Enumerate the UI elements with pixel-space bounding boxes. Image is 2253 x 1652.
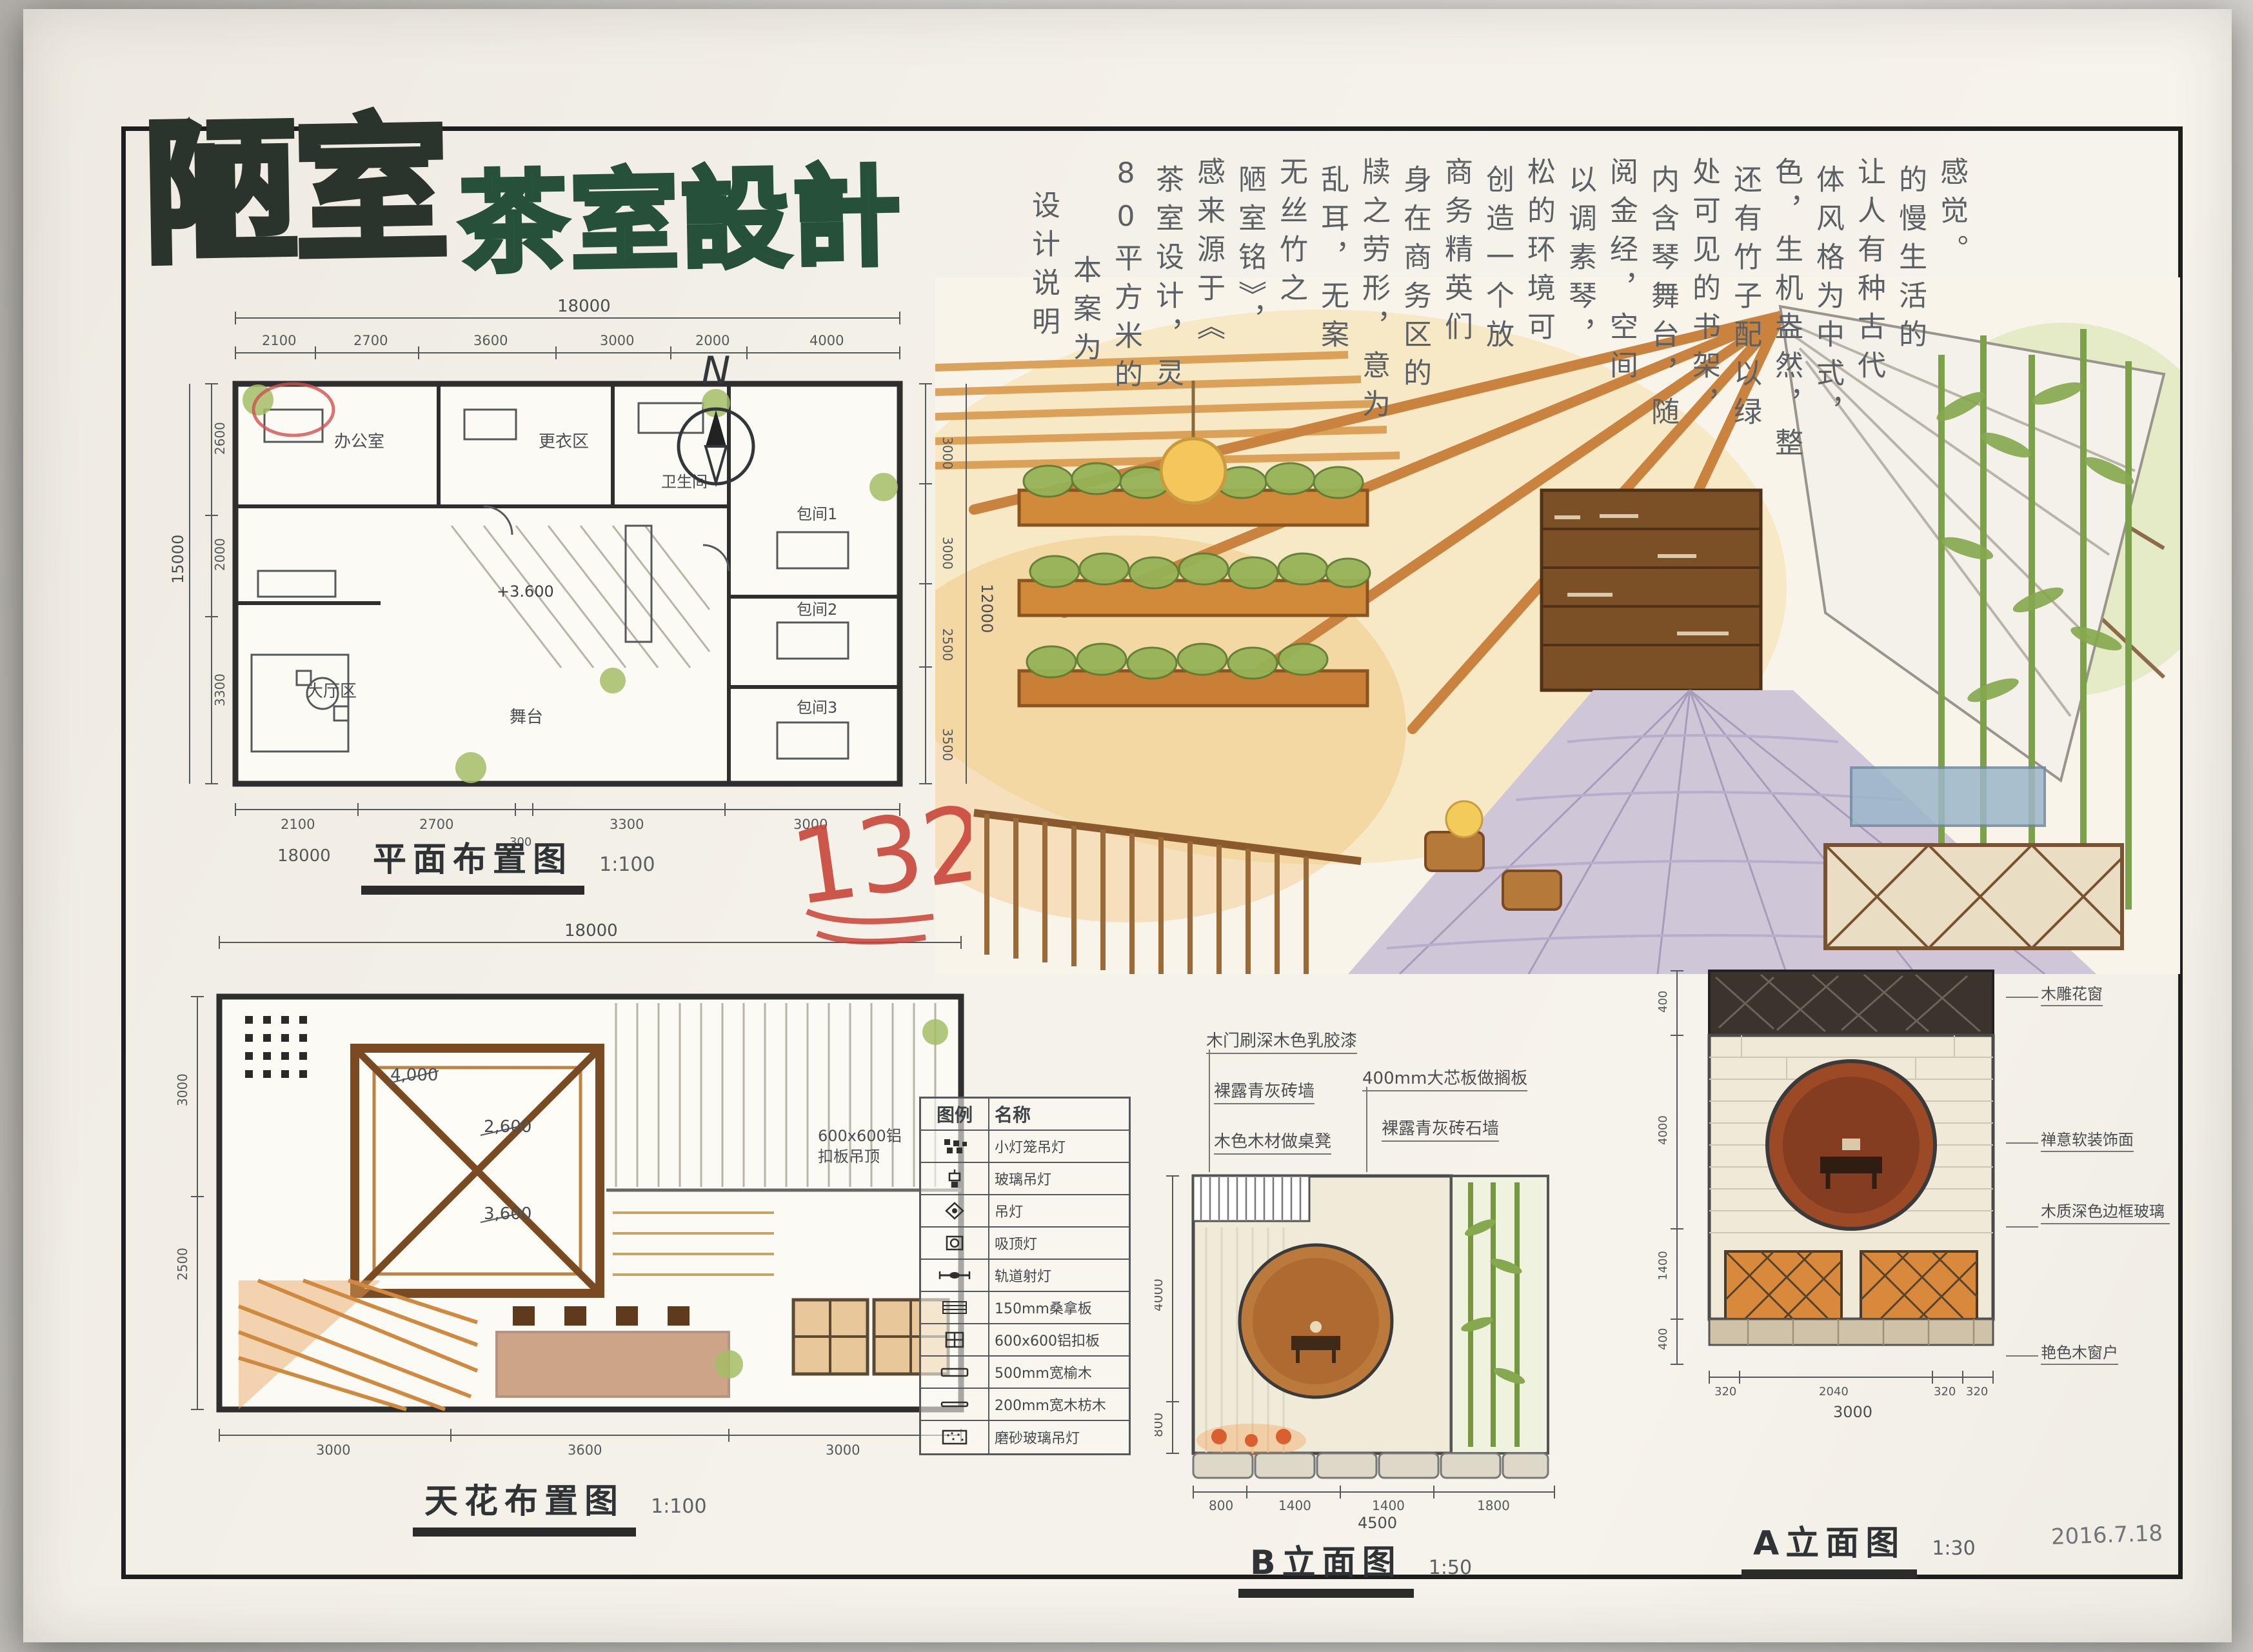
- legend-row: 吸顶灯: [921, 1228, 1129, 1260]
- dim-label: 3500: [940, 728, 955, 761]
- elevation-b-block: 木门刷深木色乳胶漆 裸露青灰砖墙 木色木材做桌凳 400mm大芯板做搁板 裸露青…: [1142, 1022, 1567, 1584]
- ceiling-panel-note: 600x600铝扣板吊顶: [818, 1126, 908, 1168]
- floor-plan-drawing: 18000 2100 2700 3600 3000 2000 4000 1500…: [161, 294, 993, 877]
- legend-row: 600x600铝扣板: [921, 1324, 1129, 1357]
- ceiling-height-callout: 2,600: [484, 1117, 531, 1137]
- room-label: 包间3: [797, 699, 837, 717]
- material-callout: 木质深色边框玻璃: [2041, 1202, 2170, 1224]
- elevation-a-block: 400 4000 1400 400: [1645, 939, 2187, 1577]
- dim-label: 4000: [809, 333, 844, 348]
- dim-label: 2100: [262, 333, 296, 348]
- legend-row: 磨砂玻璃吊灯: [921, 1421, 1129, 1453]
- dim-label: 320: [1934, 1385, 1956, 1398]
- elevation-b-drawing: 4000 800: [1155, 1169, 1561, 1534]
- dim-label: 2100: [281, 817, 315, 832]
- elevation-b-caption: B立面图 1:50: [1238, 1535, 1472, 1598]
- dim-label: 2700: [419, 817, 453, 832]
- dim-label: 1800: [1477, 1498, 1510, 1513]
- description-column: 感觉。: [1937, 157, 1965, 545]
- design-description: 设计说明 本案为 80平方米的 茶室设计，灵 感来源于《 陋室铭》， 无丝竹之 …: [1029, 145, 1965, 545]
- dim-label: 3300: [610, 817, 644, 832]
- dim-label: 400: [1658, 1328, 1670, 1350]
- description-column: 阅金经，空间: [1607, 157, 1635, 545]
- room-label: 办公室: [334, 432, 384, 452]
- description-column: 设计说明: [1029, 190, 1057, 545]
- dim-right-total: 12000: [978, 584, 993, 633]
- board-title-main: 陋室: [142, 112, 446, 272]
- level-mark: +3.600: [497, 582, 554, 601]
- material-callout: 木门刷深木色乳胶漆: [1206, 1028, 1357, 1054]
- grid-panel-icon: [921, 1324, 989, 1355]
- ceiling-height-callout: 4,000: [390, 1066, 438, 1085]
- leader-line: [2006, 1142, 2038, 1144]
- legend-name: 玻璃吊灯: [989, 1168, 1129, 1189]
- description-column: 乱耳，无案: [1318, 164, 1346, 545]
- legend-name: 吸顶灯: [989, 1233, 1129, 1253]
- description-column: 还有竹子配以绿: [1731, 164, 1759, 545]
- hanging-lamp-icon: [921, 1195, 989, 1226]
- description-column: 的慢生活的: [1896, 164, 1924, 545]
- dim-label: 1400: [1372, 1498, 1405, 1513]
- dim-label: 800: [1155, 1413, 1166, 1437]
- elevation-b-title: B立面图: [1238, 1535, 1414, 1598]
- description-column: 色，生机盎然，整: [1772, 157, 1800, 545]
- ceiling-plan-title: 天花布置图: [413, 1474, 636, 1537]
- description-column: 处可见的书架，: [1689, 157, 1718, 545]
- leader-line: [2006, 1226, 2038, 1228]
- legend-row: 小灯笼吊灯: [921, 1131, 1129, 1163]
- dim-label: 2000: [695, 333, 729, 348]
- description-column: 以调素琴，: [1565, 164, 1594, 545]
- description-column: 让人有种古代: [1854, 157, 1883, 545]
- leader-line: [1366, 1087, 1367, 1172]
- legend-name: 500mm宽榆木: [989, 1362, 1129, 1382]
- dim-top-total: 18000: [557, 297, 611, 316]
- legend-name: 轨道射灯: [989, 1265, 1129, 1286]
- ceiling-lamp-icon: [921, 1228, 989, 1259]
- pendant-light-icon: [921, 1163, 989, 1194]
- elevation-a-drawing: 400 4000 1400 400: [1658, 951, 2032, 1442]
- dim-label: 800: [1209, 1498, 1233, 1513]
- date-note: 2016.7.18: [2050, 1520, 2163, 1550]
- ceiling-plan-caption: 天花布置图 1:100: [413, 1474, 707, 1537]
- legend-name: 小灯笼吊灯: [989, 1136, 1129, 1157]
- dim-label: 2600: [212, 422, 228, 455]
- description-column: 身在商务区的: [1400, 164, 1429, 545]
- dim-top-total: 18000: [564, 921, 618, 940]
- dim-label: 3300: [212, 673, 228, 706]
- wide-board-icon: [921, 1357, 989, 1388]
- floor-plan-scale: 1:100: [599, 853, 655, 876]
- leader-line: [2006, 997, 2038, 998]
- dim-left-total: 15000: [169, 535, 187, 584]
- material-callout: 裸露青灰砖墙: [1214, 1078, 1315, 1104]
- dim-label: 2500: [940, 628, 955, 661]
- room-label: 包间2: [797, 601, 837, 619]
- description-column: 80平方米的: [1111, 157, 1140, 545]
- dim-label: 4000: [1155, 1279, 1166, 1311]
- material-callout: 400mm大芯板做搁板: [1362, 1065, 1527, 1091]
- legend-name: 600x600铝扣板: [989, 1329, 1129, 1350]
- room-label: 舞台: [510, 708, 543, 727]
- frosted-panel-icon: [921, 1421, 989, 1453]
- dim-label: 3000: [175, 1073, 190, 1106]
- dim-bottom-total: 3000: [1833, 1403, 1872, 1421]
- legend-header-symbol: 图例: [921, 1099, 989, 1130]
- elevation-a-caption: A立面图 1:30: [1742, 1516, 1976, 1578]
- ceiling-plan-scale: 1:100: [651, 1495, 706, 1518]
- material-callout: 艳色木窗户: [2041, 1340, 2118, 1365]
- dim-label: 2700: [353, 333, 388, 348]
- design-board-photo: { "board": { "title_main": "陋室", "title_…: [0, 0, 2253, 1652]
- description-column: 牍之劳形，意为: [1359, 157, 1387, 545]
- dim-label: 320: [1966, 1385, 1988, 1398]
- leader-line: [2006, 1355, 2038, 1357]
- red-marker-annotation: 132: [784, 797, 971, 960]
- elevation-b-scale: 1:50: [1429, 1557, 1472, 1579]
- description-column: 创造一个放: [1483, 164, 1511, 545]
- description-column: 茶室设计，灵: [1153, 164, 1181, 545]
- description-column: 松的环境可: [1524, 157, 1553, 545]
- legend-row: 200mm宽木枋木: [921, 1389, 1129, 1421]
- material-callout: 木雕花窗: [2041, 981, 2103, 1006]
- legend-row: 吊灯: [921, 1195, 1129, 1228]
- dim-label: 3000: [940, 537, 955, 570]
- description-column: 无丝竹之: [1276, 157, 1305, 545]
- dim-label: 400: [1658, 991, 1670, 1013]
- leader-line: [1209, 1050, 1210, 1172]
- dim-label: 2040: [1819, 1385, 1849, 1398]
- dim-label: 2000: [212, 538, 228, 571]
- ceiling-height-callout: 3,600: [484, 1204, 531, 1224]
- description-column: 感来源于《: [1194, 157, 1222, 545]
- dim-label: 3000: [316, 1442, 350, 1458]
- north-label: N: [671, 348, 761, 393]
- dim-label: 3000: [600, 333, 634, 348]
- description-column: 体风格为中式，: [1813, 164, 1841, 545]
- legend-name: 150mm桑拿板: [989, 1297, 1129, 1318]
- dim-label: 4000: [1658, 1115, 1670, 1145]
- description-column: 陋室铭》，: [1235, 164, 1264, 545]
- legend-name: 磨砂玻璃吊灯: [989, 1427, 1129, 1448]
- legend-name: 200mm宽木枋木: [989, 1394, 1129, 1415]
- ceiling-plan-drawing: 18000: [161, 919, 993, 1487]
- elevation-a-title: A立面图: [1742, 1516, 1917, 1578]
- legend-name: 吊灯: [989, 1200, 1129, 1221]
- legend-row: 500mm宽榆木: [921, 1357, 1129, 1389]
- description-column: 本案为: [1070, 255, 1098, 545]
- floor-plan-bottom-total: 18000: [277, 846, 331, 866]
- material-callout: 木色木材做桌凳: [1214, 1128, 1331, 1155]
- legend-header-name: 名称: [989, 1101, 1129, 1127]
- dim-label: 1400: [1658, 1251, 1670, 1280]
- dim-label: 1400: [1278, 1498, 1311, 1513]
- description-column: 商务精英们: [1442, 157, 1470, 545]
- lantern-cluster-icon: [921, 1131, 989, 1162]
- dim-label: 3600: [473, 333, 508, 348]
- room-label: 大厅区: [306, 682, 357, 701]
- legend-table: 图例 名称 小灯笼吊灯 玻璃吊灯 吊灯 吸顶灯 轨道射灯 150mm: [919, 1097, 1131, 1455]
- material-callout: 禅意软装饰面: [2041, 1127, 2134, 1152]
- legend-row: 轨道射灯: [921, 1260, 1129, 1292]
- dim-label: 3000: [826, 1442, 860, 1458]
- legend-row: 玻璃吊灯: [921, 1163, 1129, 1195]
- legend-row: 150mm桑拿板: [921, 1292, 1129, 1324]
- dim-bottom-total: 4500: [1358, 1514, 1397, 1532]
- room-label: 包间1: [797, 505, 837, 523]
- sauna-board-icon: [921, 1292, 989, 1323]
- north-arrow-icon: N: [671, 348, 761, 493]
- dim-label: 2500: [175, 1248, 190, 1280]
- board-title-sub: 茶室設計: [459, 163, 904, 279]
- narrow-board-icon: [921, 1389, 989, 1420]
- floor-plan-title: 平面布置图: [361, 832, 584, 895]
- dim-label: 320: [1714, 1385, 1736, 1398]
- dim-label: 3600: [568, 1442, 602, 1458]
- material-callout: 裸露青灰砖石墙: [1382, 1115, 1499, 1142]
- legend-header-row: 图例 名称: [921, 1099, 1129, 1131]
- red-marker-text: 132: [784, 797, 971, 929]
- room-label: 更衣区: [539, 432, 589, 452]
- elevation-a-scale: 1:30: [1932, 1537, 1975, 1560]
- track-spotlight-icon: [921, 1260, 989, 1291]
- dim-label: 3000: [940, 437, 955, 470]
- floor-plan-caption: 平面布置图 1:100: [361, 832, 655, 895]
- description-column: 内含琴舞台，随: [1648, 164, 1676, 545]
